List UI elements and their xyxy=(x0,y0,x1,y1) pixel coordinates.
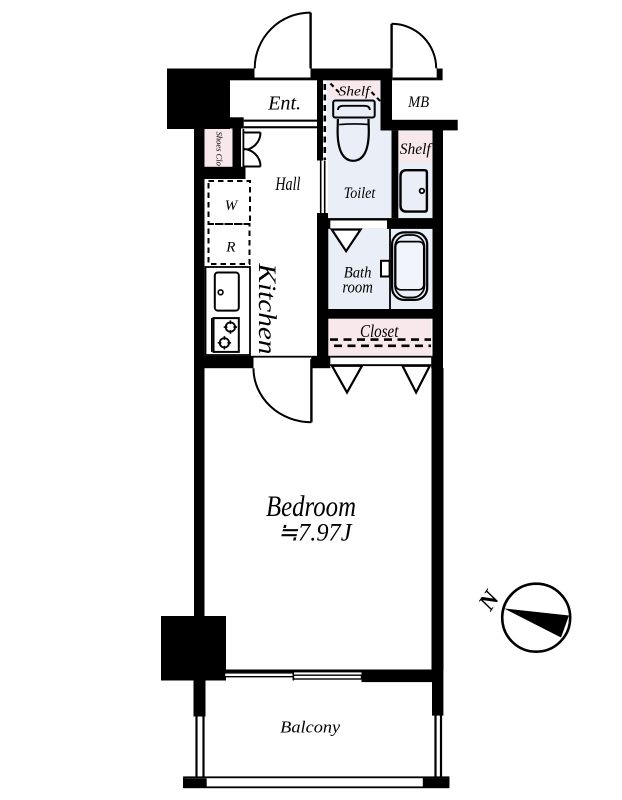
svg-text:MB: MB xyxy=(407,94,429,111)
svg-text:Toilet: Toilet xyxy=(344,185,376,202)
svg-text:Shelf: Shelf xyxy=(339,84,372,99)
svg-text:Shoes Clo: Shoes Clo xyxy=(215,132,225,166)
svg-text:W: W xyxy=(225,198,239,214)
svg-text:room: room xyxy=(342,278,373,297)
svg-text:Bedroom: Bedroom xyxy=(266,490,356,523)
svg-text:Kitchen: Kitchen xyxy=(253,262,280,354)
svg-text:≒7.97J: ≒7.97J xyxy=(278,520,354,547)
svg-text:Balcony: Balcony xyxy=(280,718,341,737)
svg-text:Ent.: Ent. xyxy=(267,93,301,115)
svg-text:Shelf: Shelf xyxy=(400,141,434,158)
svg-text:Closet: Closet xyxy=(360,321,399,341)
svg-text:R: R xyxy=(225,240,235,256)
svg-text:Hall: Hall xyxy=(275,174,301,195)
